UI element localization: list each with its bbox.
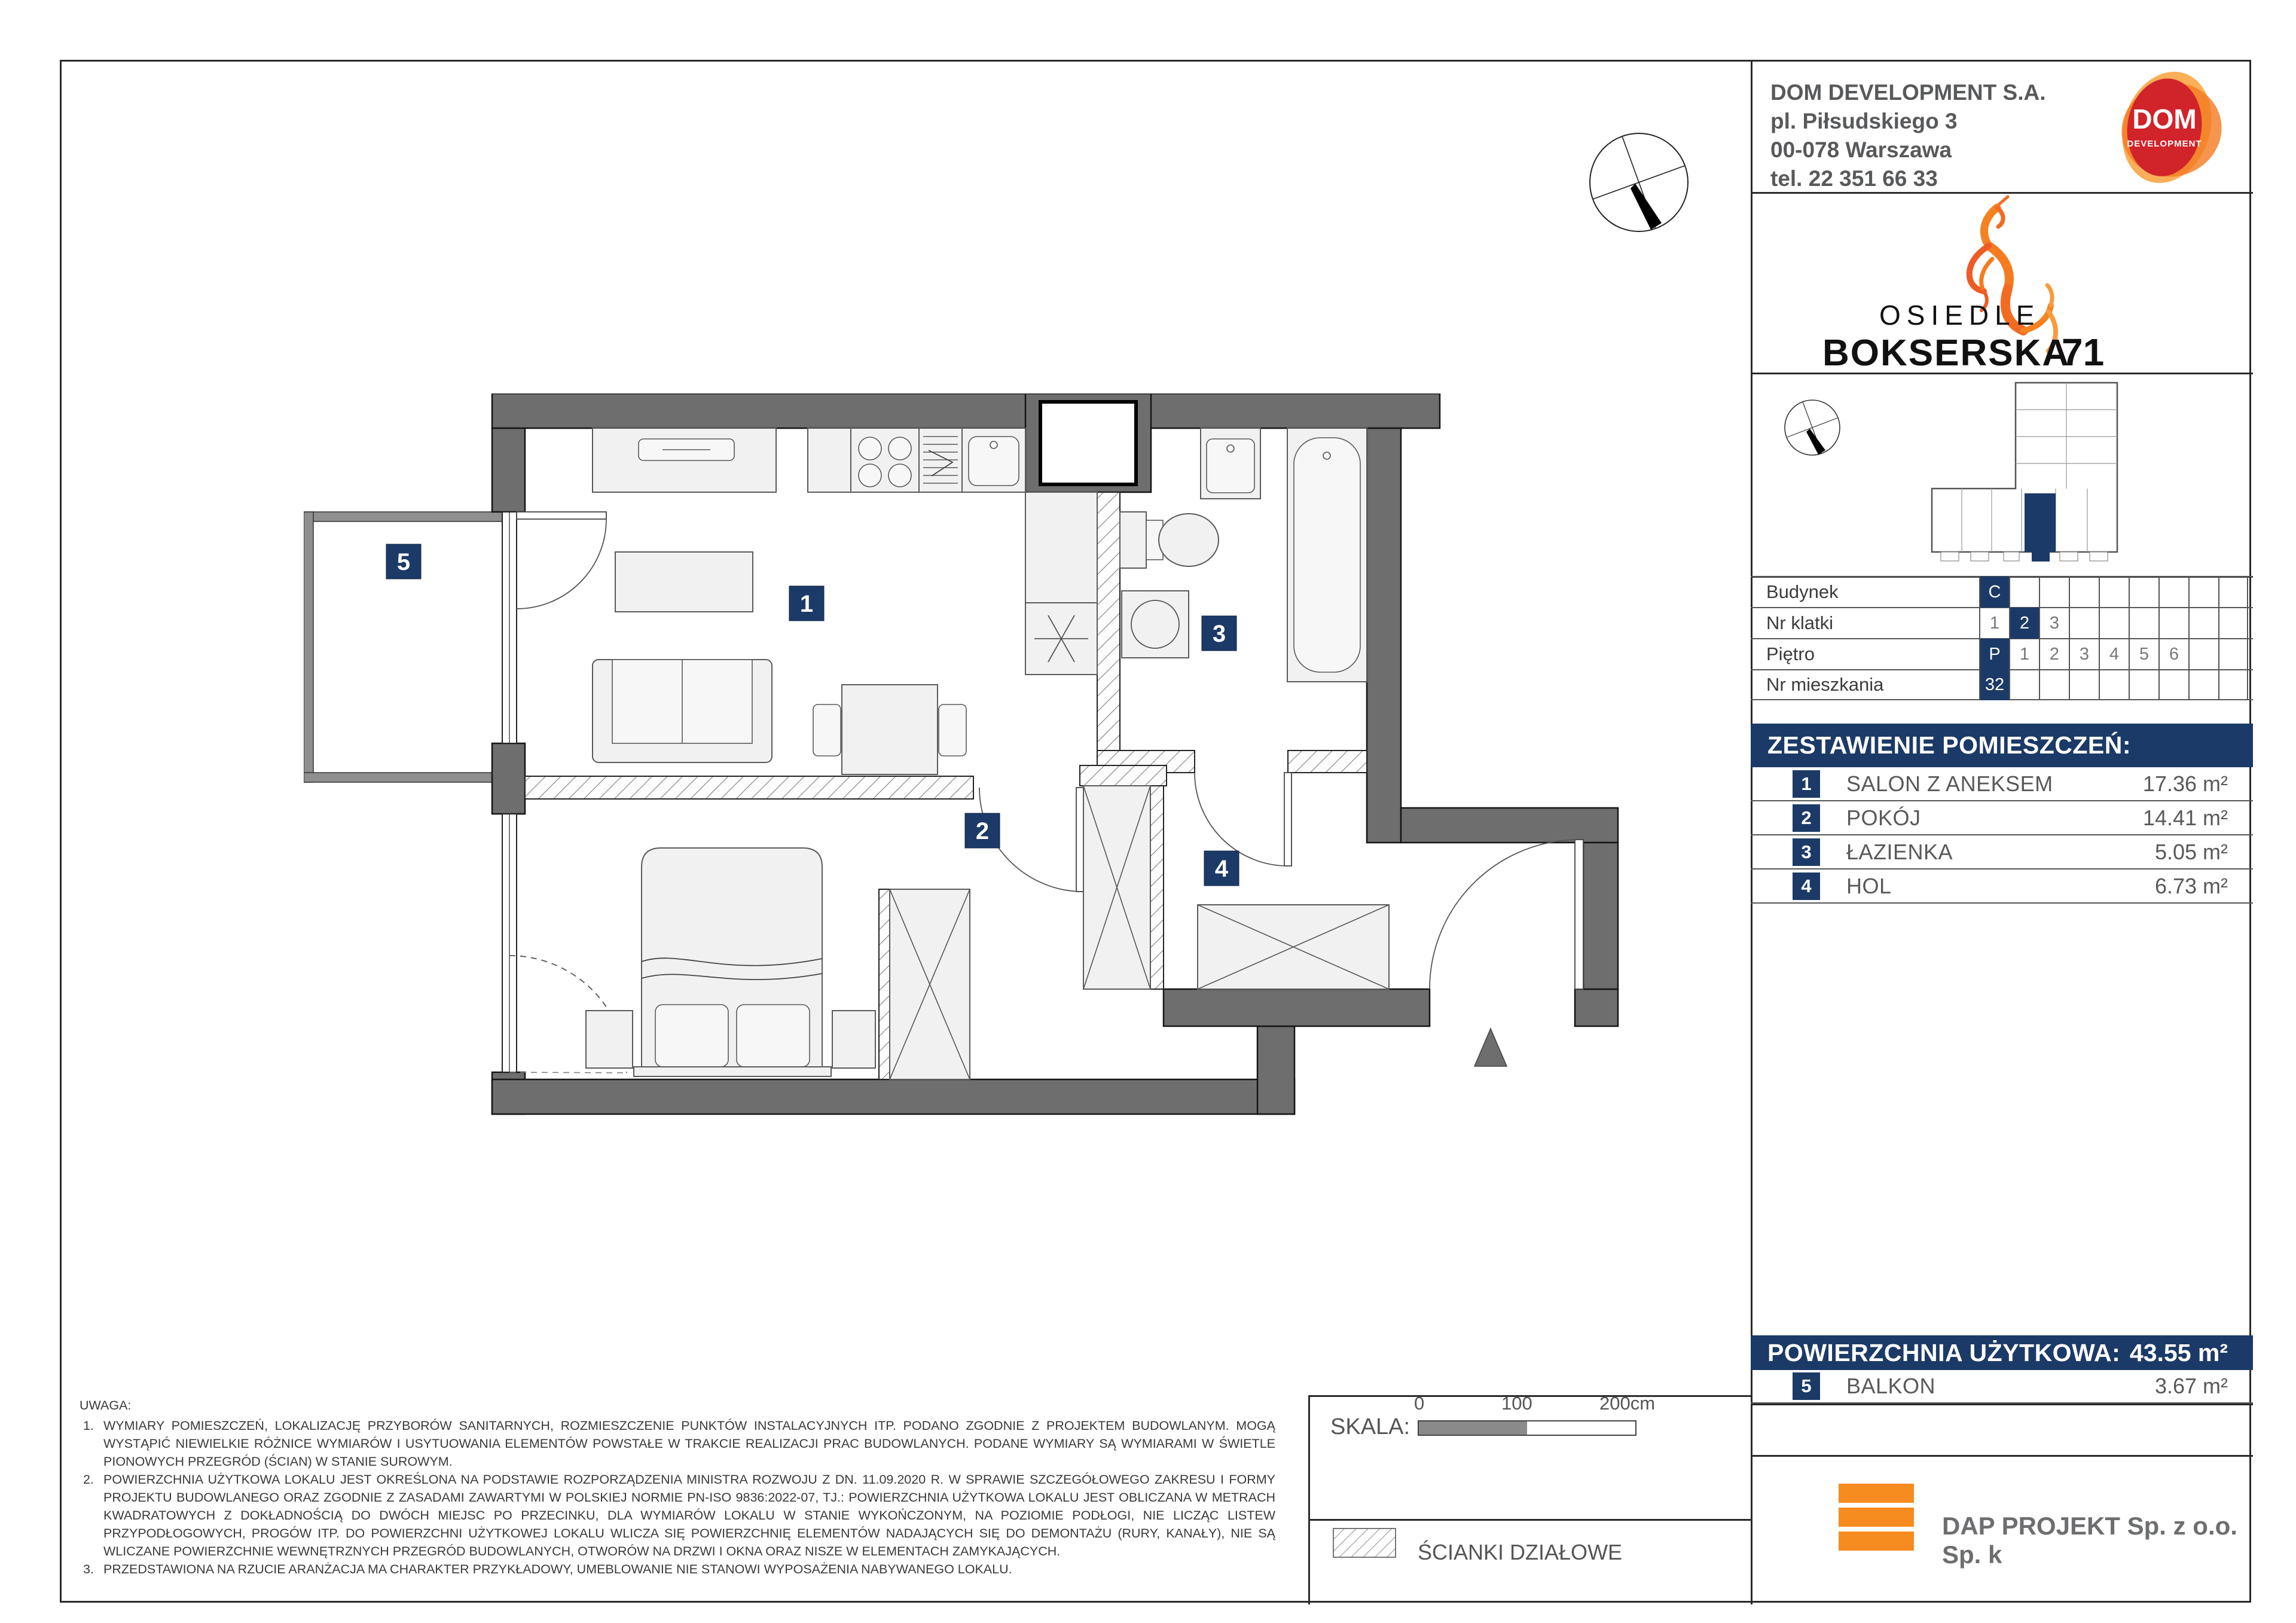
cell: 2: [2039, 639, 2069, 670]
highlighted-unit: [2025, 493, 2056, 562]
svg-text:5: 5: [397, 549, 410, 575]
floor-plan: .w{fill:#6e6e6e;stroke:#151515;stroke-wi…: [304, 393, 1619, 1117]
svg-text:71: 71: [2062, 331, 2104, 371]
cell: 4: [2099, 639, 2129, 670]
cell: [2218, 669, 2248, 700]
room-number-badge: 2: [1793, 804, 1820, 832]
bathtub: [1287, 428, 1367, 682]
cell: [2188, 639, 2218, 670]
bathroom-sink: [1201, 428, 1260, 499]
scale-tick: 100: [1501, 1393, 1532, 1414]
cell: 32: [1979, 669, 2009, 700]
hall-wardrobe-vertical: [1083, 786, 1150, 989]
row-label: Nr klatki: [1751, 612, 1979, 634]
notes-title: UWAGA:: [80, 1396, 1275, 1414]
cell: [2218, 576, 2248, 608]
window-living: [502, 512, 517, 743]
room-name: BALKON: [1846, 1374, 1935, 1399]
cell: [2039, 576, 2069, 608]
dishwasher: [919, 428, 962, 492]
bedroom-wardrobe: [890, 889, 970, 1079]
scale-label: SKALA:: [1330, 1414, 1410, 1440]
building-outline: [1932, 383, 2117, 562]
room-area: 17.36 m²: [2143, 771, 2228, 797]
room-name: HOL: [1846, 874, 1892, 899]
room-label-4: 4: [1204, 851, 1239, 886]
cell: [2069, 608, 2099, 639]
room-label-1: 1: [789, 586, 824, 621]
minimap-compass-icon: [1785, 400, 1840, 455]
svg-text:DOM: DOM: [2132, 103, 2196, 135]
cell: 3: [2069, 639, 2099, 670]
room-number-badge: 5: [1793, 1372, 1820, 1400]
hall-wardrobe-horizontal: [1198, 905, 1389, 989]
room-label-3: 3: [1202, 616, 1236, 651]
cell: P: [1979, 639, 2009, 670]
room-row: 3 ŁAZIENKA 5.05 m²: [1751, 835, 2253, 870]
cell: [2158, 576, 2188, 608]
note-item: 3. PRZEDSTAWIONA NA RZUCIE ARANŻACJA MA …: [80, 1560, 1275, 1578]
room-label-5: 5: [386, 544, 421, 579]
cell: [2129, 669, 2158, 700]
cell: C: [1979, 576, 2009, 608]
cell: 6: [2158, 639, 2188, 670]
room-row: 1 SALON Z ANEKSEM 17.36 m²: [1751, 767, 2253, 801]
svg-text:BOKSERSKA: BOKSERSKA: [1822, 332, 2070, 371]
scale-tick: 0: [1414, 1393, 1424, 1414]
room-row: 4 HOL 6.73 m²: [1751, 870, 2253, 904]
svg-text:1: 1: [800, 591, 813, 617]
room-name: SALON Z ANEKSEM: [1846, 771, 2053, 797]
usable-area-label: POWIERZCHNIA UŻYTKOWA:: [1767, 1339, 2120, 1367]
cell: 1: [1979, 608, 2009, 639]
entrance-door: [1430, 840, 1583, 989]
drawing-sheet: .w{fill:#6e6e6e;stroke:#151515;stroke-wi…: [60, 60, 2251, 1603]
room-number-badge: 4: [1793, 872, 1820, 900]
row-label: Nr mieszkania: [1751, 674, 1979, 695]
cell: [2069, 669, 2099, 700]
dom-development-logo: DOM DEVELOPMENT: [2102, 68, 2231, 187]
room-number-badge: 3: [1793, 838, 1820, 866]
cell: [2009, 576, 2039, 608]
room-area: 5.05 m²: [2155, 840, 2228, 865]
table-row: Nr klatki 123: [1751, 607, 2253, 638]
cell: [2188, 576, 2218, 608]
unit-table: Budynek C Nr klatki 123 Piętro P123456 N…: [1751, 576, 2253, 700]
kitchen-sink: [962, 428, 1025, 492]
room-number-badge: 1: [1793, 770, 1820, 798]
divider: [1751, 1455, 2253, 1457]
cell: 5: [2129, 639, 2158, 670]
usable-area-value: 43.55 m²: [2130, 1339, 2228, 1367]
cell: 3: [2039, 608, 2069, 639]
svg-text:OSIEDLE: OSIEDLE: [1879, 300, 2040, 331]
rooms-header: ZESTAWIENIE POMIESZCZEŃ:: [1751, 724, 2253, 767]
dap-logo: [1839, 1484, 1914, 1555]
cell: [2218, 608, 2248, 639]
cell: [2129, 576, 2158, 608]
cell: [2188, 608, 2218, 639]
balcony-row: 5 BALKON 3.67 m²: [1751, 1370, 2253, 1404]
svg-text:4: 4: [1215, 856, 1229, 882]
bed: [586, 848, 875, 1076]
svg-text:2: 2: [976, 818, 989, 844]
usable-area-bar: POWIERZCHNIA UŻYTKOWA: 43.55 m²: [1751, 1335, 2253, 1370]
notes: UWAGA: 1. WYMIARY POMIESZCZEŃ, LOKALIZAC…: [80, 1396, 1275, 1578]
entrance-arrow: [1474, 1029, 1507, 1066]
room-area: 3.67 m²: [2155, 1374, 2228, 1399]
cell: [2099, 669, 2129, 700]
scale-bar: [1418, 1420, 1636, 1436]
window-bedroom: [502, 814, 517, 1072]
cell: 2: [2009, 608, 2039, 639]
cell: [2039, 669, 2069, 700]
scale-tick: 200cm: [1599, 1393, 1655, 1414]
sofa: [593, 660, 772, 762]
north-compass: [1585, 129, 1693, 236]
room-row: 2 POKÓJ 14.41 m²: [1751, 801, 2253, 835]
kitchen-column: [1025, 492, 1097, 675]
cell: [2069, 576, 2099, 608]
partition-legend-label: ŚCIANKI DZIAŁOWE: [1418, 1540, 1622, 1565]
room-label-2: 2: [965, 813, 1000, 848]
room-name: POKÓJ: [1846, 806, 1921, 831]
cell: 1: [2009, 639, 2039, 670]
building-minimap: [1752, 374, 2251, 575]
room-name: ŁAZIENKA: [1846, 840, 1953, 865]
svg-text:DEVELOPMENT: DEVELOPMENT: [2127, 139, 2202, 149]
note-item: 2. POWIERZCHNIA UŻYTKOWA LOKALU JEST OKR…: [80, 1471, 1275, 1560]
dining-table: [813, 685, 966, 774]
divider: [1308, 1519, 1751, 1521]
rooms-title: ZESTAWIENIE POMIESZCZEŃ:: [1767, 731, 2131, 759]
cell: [2218, 639, 2248, 670]
designer-name: DAP PROJEKT Sp. z o.o. Sp. k: [1942, 1512, 2249, 1569]
shaft: [1040, 402, 1136, 484]
coffee-table: [615, 552, 753, 612]
divider: [1751, 1404, 2253, 1405]
developer-address: DOM DEVELOPMENT S.A. pl. Piłsudskiego 3 …: [1770, 78, 2045, 193]
room-area: 6.73 m²: [2155, 874, 2228, 899]
stove: [851, 428, 919, 492]
toilet: [1120, 512, 1219, 568]
washing-machine: [1122, 591, 1189, 658]
cell: [2158, 608, 2188, 639]
room-area: 14.41 m²: [2143, 806, 2228, 831]
svg-text:3: 3: [1213, 621, 1226, 647]
balcony-door: [517, 512, 606, 609]
cell: [2009, 669, 2039, 700]
cell: [2188, 669, 2218, 700]
cell: [2099, 608, 2129, 639]
note-item: 1. WYMIARY POMIESZCZEŃ, LOKALIZACJĘ PRZY…: [80, 1417, 1275, 1471]
row-label: Budynek: [1751, 581, 1979, 603]
cell: [2129, 608, 2158, 639]
kitchen-counter: [593, 428, 851, 492]
table-row: Budynek C: [1751, 576, 2253, 607]
row-label: Piętro: [1751, 643, 1979, 665]
project-logo: OSIEDLE BOKSERSKA 71: [1751, 194, 2253, 371]
cell: [2099, 576, 2129, 608]
table-row: Piętro P123456: [1751, 638, 2253, 669]
partition-legend-swatch: [1333, 1528, 1396, 1558]
cell: [2158, 669, 2188, 700]
table-row: Nr mieszkania 32: [1751, 669, 2253, 700]
